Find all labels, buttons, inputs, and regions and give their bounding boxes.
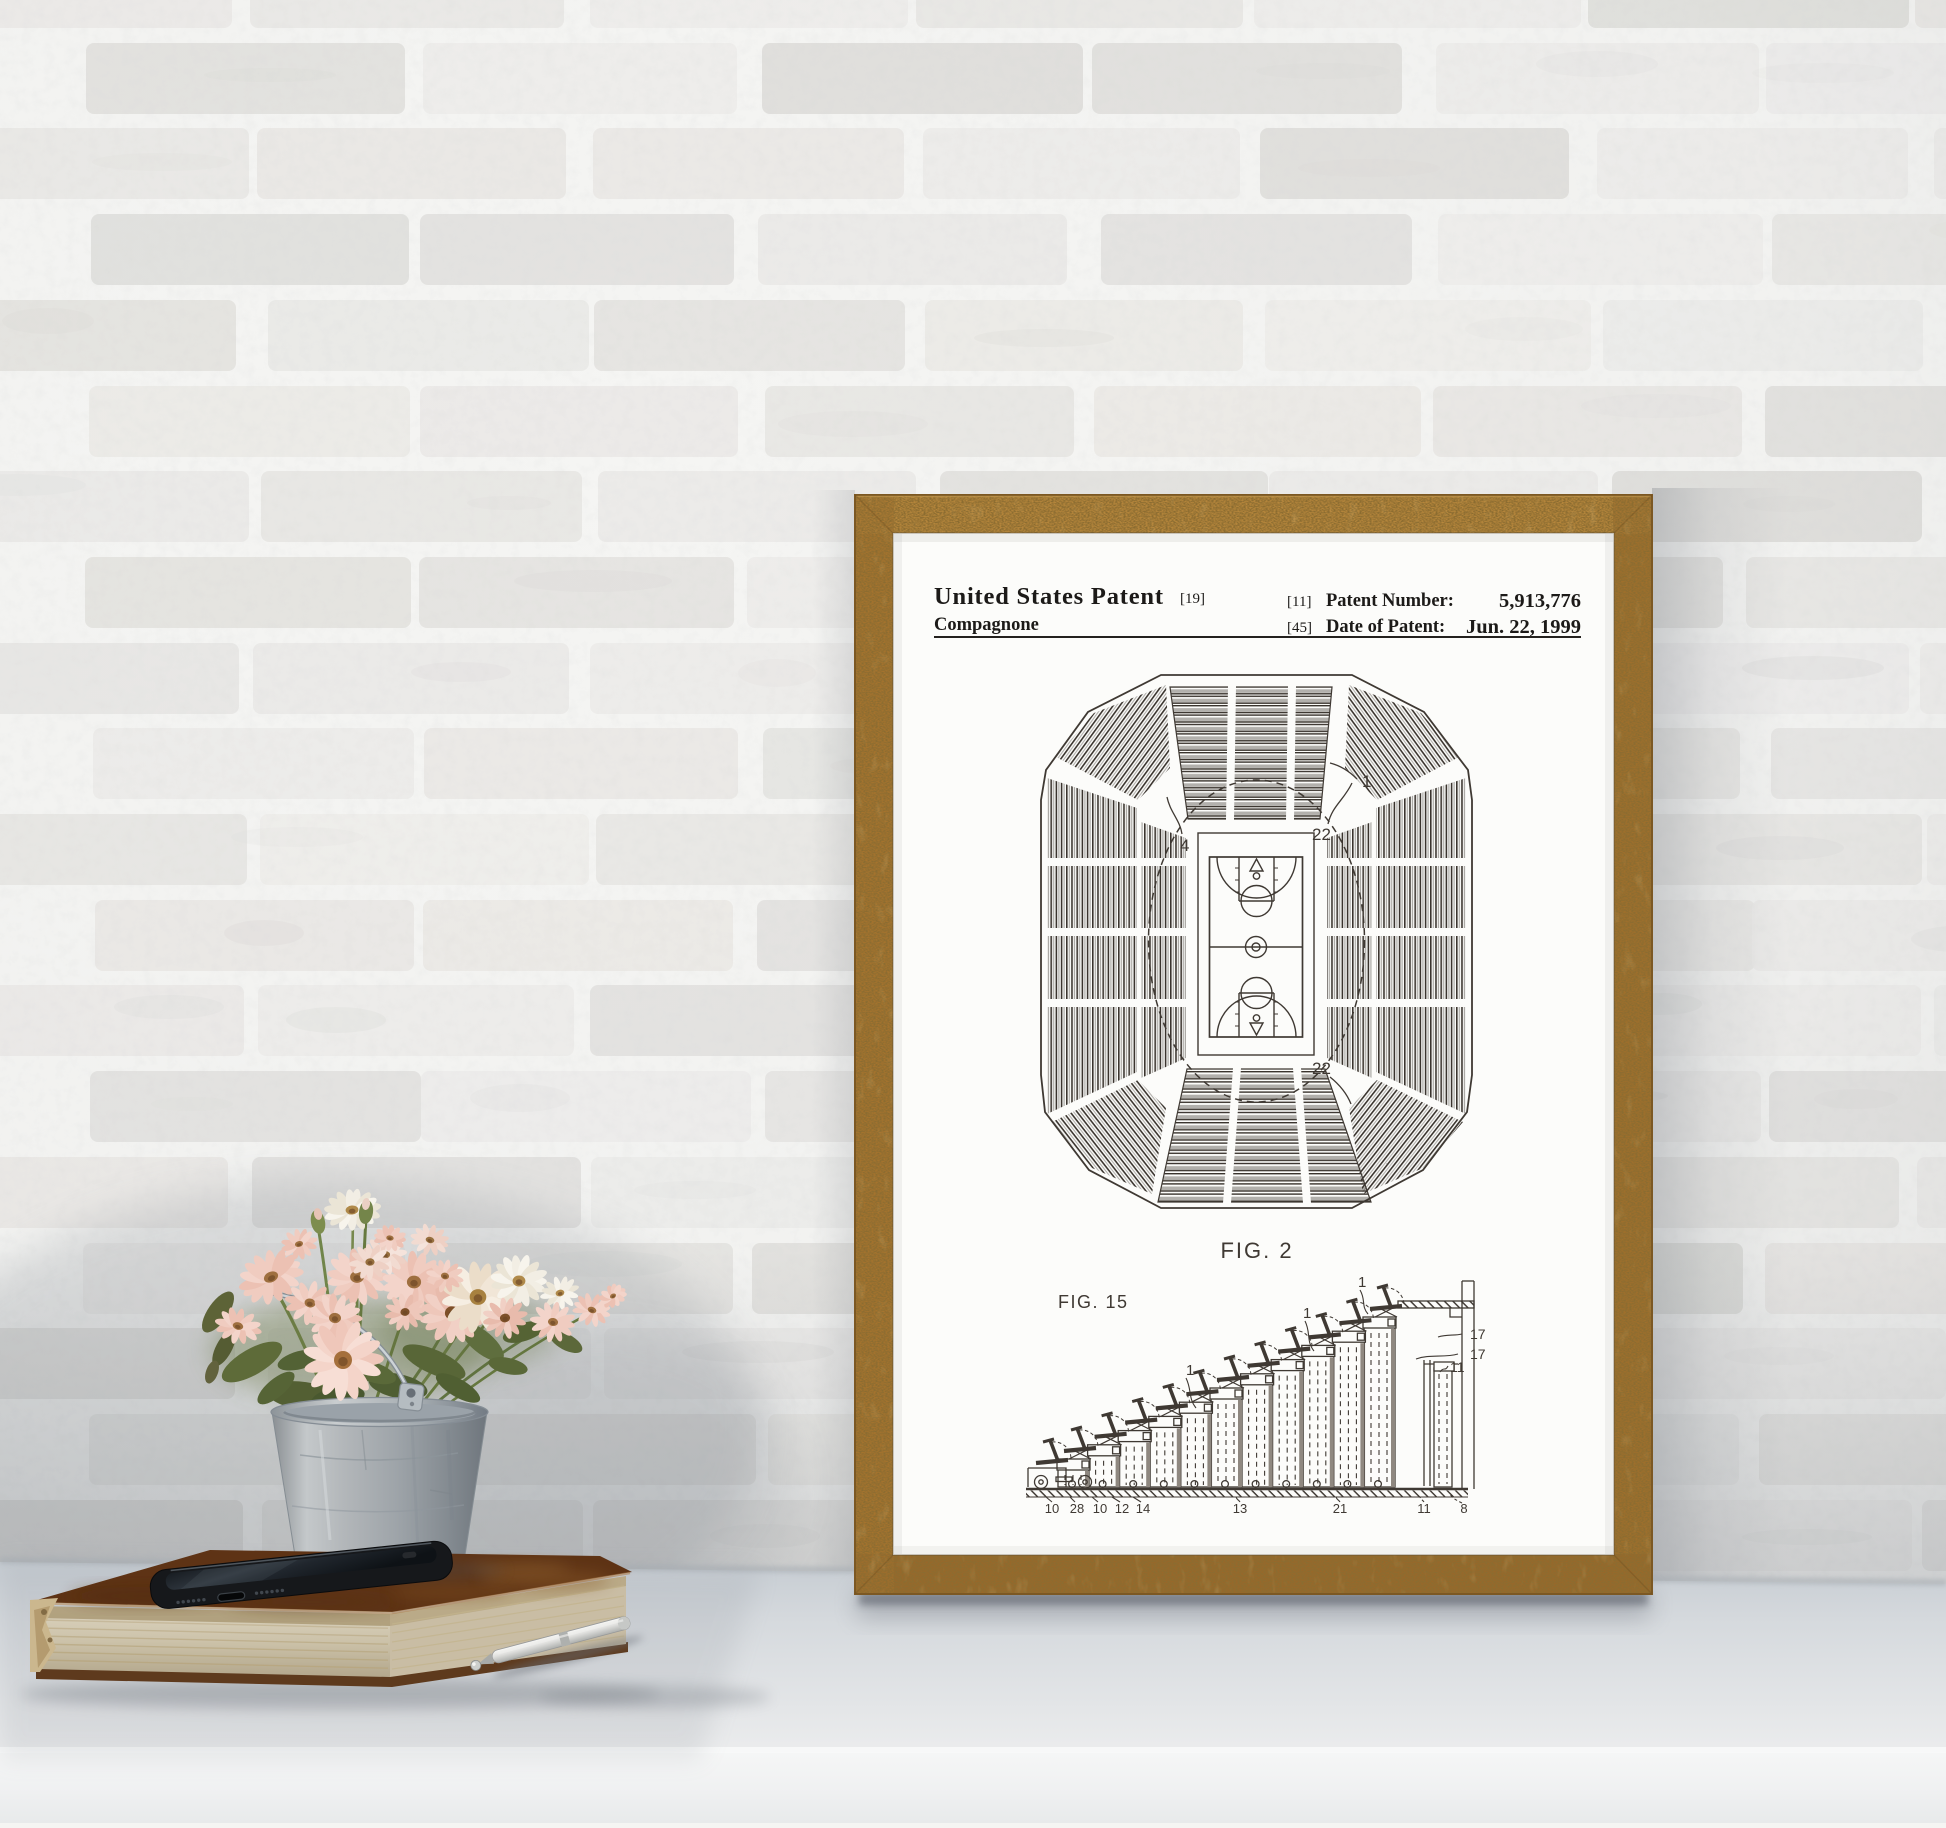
svg-text:10: 10 bbox=[1045, 1501, 1059, 1516]
svg-text:10: 10 bbox=[1093, 1501, 1107, 1516]
svg-text:14: 14 bbox=[1136, 1501, 1150, 1516]
svg-text:Date of Patent:: Date of Patent: bbox=[1326, 617, 1445, 637]
svg-text:[11]: [11] bbox=[1287, 594, 1311, 610]
svg-text:17: 17 bbox=[1470, 1326, 1486, 1342]
svg-text:12: 12 bbox=[1115, 1501, 1129, 1516]
svg-text:FIG. 2: FIG. 2 bbox=[1220, 1238, 1293, 1263]
svg-text:22: 22 bbox=[1312, 825, 1331, 844]
svg-text:11: 11 bbox=[1450, 1359, 1465, 1375]
svg-text:Patent Number:: Patent Number: bbox=[1326, 591, 1454, 611]
svg-text:22: 22 bbox=[1312, 1059, 1331, 1078]
svg-text:Compagnone: Compagnone bbox=[934, 615, 1039, 635]
svg-text:21: 21 bbox=[1333, 1501, 1347, 1516]
svg-text:FIG. 15: FIG. 15 bbox=[1058, 1292, 1129, 1312]
svg-text:8: 8 bbox=[1460, 1501, 1467, 1516]
svg-text:1: 1 bbox=[1358, 1274, 1366, 1291]
svg-text:United States Patent: United States Patent bbox=[934, 583, 1164, 610]
svg-text:1: 1 bbox=[1186, 1362, 1194, 1379]
svg-text:Jun. 22, 1999: Jun. 22, 1999 bbox=[1466, 616, 1581, 638]
svg-text:17: 17 bbox=[1470, 1346, 1486, 1362]
svg-text:13: 13 bbox=[1233, 1501, 1247, 1516]
svg-text:1: 1 bbox=[1303, 1305, 1311, 1322]
svg-text:5,913,776: 5,913,776 bbox=[1499, 590, 1581, 612]
svg-text:1: 1 bbox=[1362, 772, 1371, 791]
svg-text:11: 11 bbox=[1417, 1501, 1431, 1516]
svg-text:28: 28 bbox=[1070, 1501, 1084, 1516]
svg-text:[19]: [19] bbox=[1180, 591, 1205, 607]
svg-text:[45]: [45] bbox=[1287, 620, 1312, 636]
svg-text:4: 4 bbox=[1180, 836, 1189, 855]
